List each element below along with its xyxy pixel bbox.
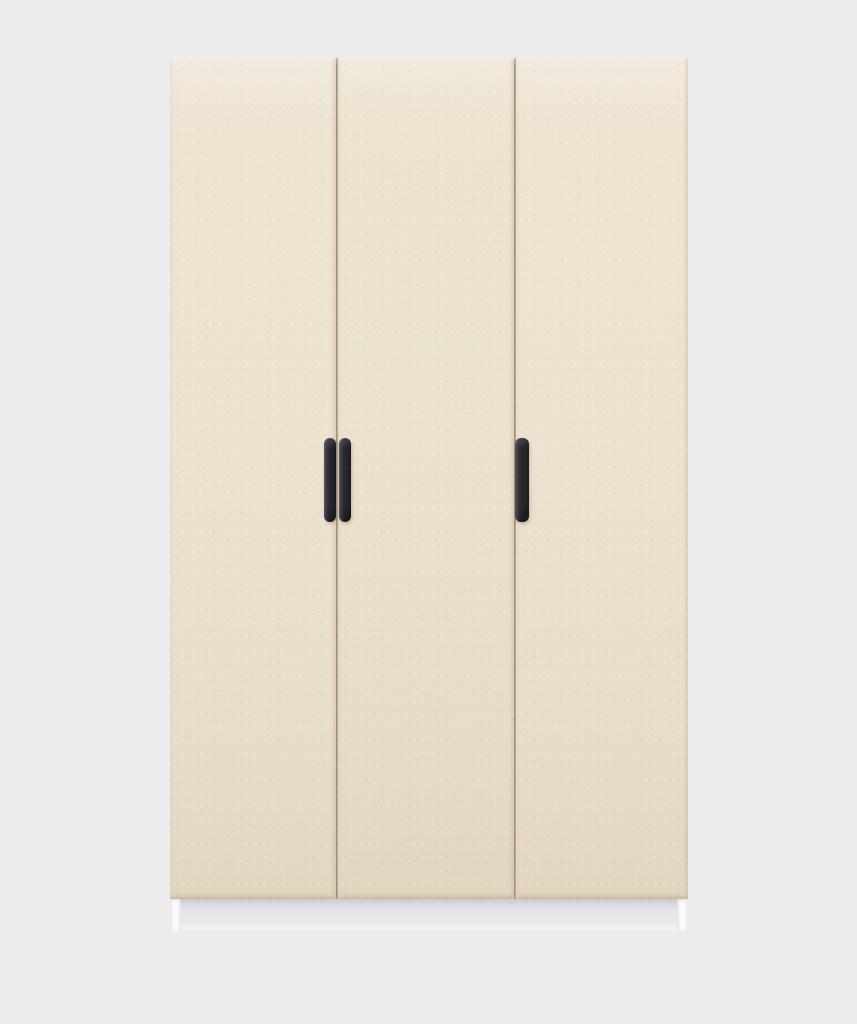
wardrobe-door-right (516, 58, 688, 899)
studio-background (0, 0, 857, 1024)
wardrobe-door-left (170, 58, 336, 899)
wardrobe-doors (170, 58, 688, 899)
wardrobe-door-middle (338, 58, 514, 899)
wardrobe (170, 58, 688, 931)
door-handle-pair-left-bar (324, 438, 336, 522)
plinth-foot-left (172, 899, 181, 931)
plinth-foot-right (677, 899, 686, 931)
plinth-recess-panel (181, 899, 677, 930)
wardrobe-plinth (172, 899, 686, 931)
door-handle-pair-right-bar (339, 438, 351, 522)
door-handle-single-bar (515, 438, 529, 522)
